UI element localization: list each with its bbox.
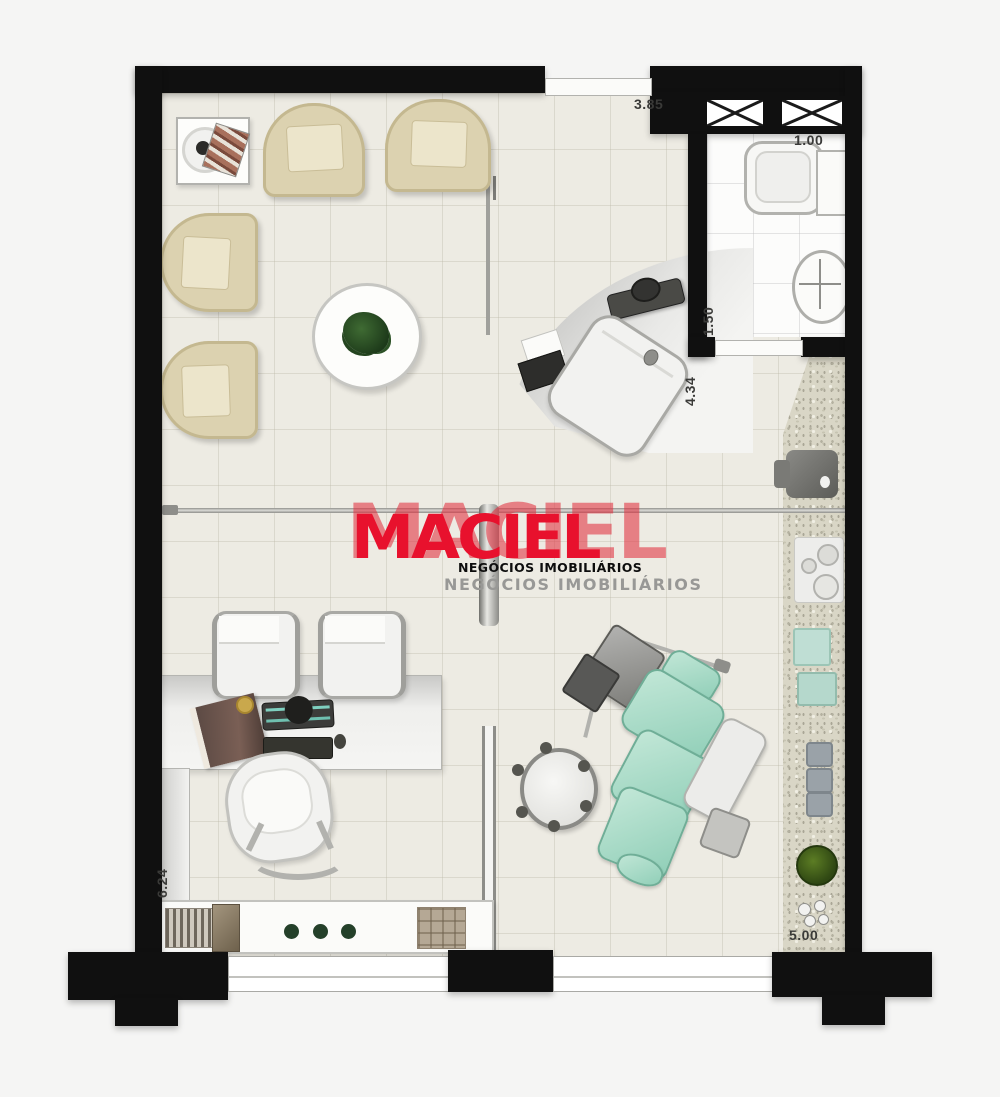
stool-foot — [540, 742, 552, 754]
credenza-shelf — [160, 900, 494, 954]
side-table — [176, 117, 250, 185]
guest-chair-1 — [212, 611, 300, 699]
vent-shaft-2 — [778, 96, 846, 130]
decor-dot — [313, 924, 328, 939]
dim-hall-depth: 4.34 — [682, 352, 698, 406]
glass-partition-end-cap — [162, 505, 178, 515]
wall-bottom-middle — [448, 950, 553, 992]
tray-circle — [813, 574, 839, 600]
sterilizer-handle — [774, 460, 790, 488]
stool-foot — [578, 760, 590, 772]
dim-reception-width: 3.85 — [634, 96, 663, 112]
stool-foot — [548, 820, 560, 832]
counter-teal-tray — [793, 628, 831, 666]
logo-maciel: MACIEL — [351, 507, 598, 568]
tray-box-icon — [417, 907, 466, 949]
column-bottom-right-stub — [822, 995, 885, 1025]
wall-top-left — [135, 66, 545, 93]
guest-chair-back — [325, 616, 385, 644]
bathroom-sink — [744, 141, 824, 215]
guest-chair-back — [219, 616, 279, 644]
waiting-armchair-1 — [263, 103, 365, 197]
gold-coin-icon — [236, 696, 254, 714]
wall-left — [135, 66, 162, 956]
desk-monitor-icon — [261, 699, 334, 731]
counter-plant-icon — [796, 845, 838, 886]
entry-glass-screen-handle — [493, 176, 496, 200]
tray-circle — [817, 544, 839, 566]
window-sill — [554, 976, 773, 978]
waiting-armchair-2 — [385, 99, 491, 192]
sink-basin — [755, 151, 811, 203]
counter-gray-module — [806, 792, 833, 817]
decor-dot — [341, 924, 356, 939]
instrument-tray-module — [794, 537, 844, 603]
waiting-armchair-4 — [160, 341, 258, 439]
office-chair-cushion — [238, 765, 316, 838]
stool-foot — [512, 764, 524, 776]
coffee-table — [312, 283, 422, 390]
toilet-cross-h — [799, 283, 841, 285]
logo-tagline-black: NEGÓCIOS IMOBILIÁRIOS — [458, 562, 642, 575]
waiting-armchair-3 — [160, 213, 258, 312]
floor-plan-image: { "watermark": { "brand_front": "MACIEL"… — [0, 0, 1000, 1097]
counter-teal-tray — [797, 672, 837, 706]
dim-bathroom-depth: 1.50 — [700, 284, 716, 336]
wood-box-icon — [212, 904, 240, 952]
counter-gray-module — [806, 768, 833, 793]
tray-circle — [801, 558, 817, 574]
column-bottom-left-stub — [115, 998, 178, 1026]
pebble — [818, 914, 829, 925]
guest-chair-2 — [318, 611, 406, 699]
logo-tagline-gray: NEGÓCIOS IMOBILIÁRIOS — [444, 577, 703, 593]
wall-top-bathroom — [650, 66, 862, 92]
window-bottom-2 — [553, 956, 774, 992]
sink-counter — [816, 150, 848, 216]
armchair-cushion — [410, 120, 468, 168]
window-bottom-1 — [228, 956, 450, 992]
armchair-cushion — [181, 236, 232, 290]
sterilizer-dot — [820, 476, 830, 488]
stool-foot — [580, 800, 592, 812]
counter-gray-module — [806, 742, 833, 767]
column-bottom-left — [68, 952, 228, 1000]
dim-office-depth: 6.24 — [154, 846, 170, 898]
entry-glass-screen — [486, 168, 490, 335]
window-sill — [229, 976, 449, 978]
wall-right — [845, 66, 862, 956]
vent-shaft-1 — [703, 96, 767, 130]
bathroom-toilet — [792, 250, 852, 324]
pebble — [814, 900, 826, 912]
armchair-cushion — [181, 364, 231, 418]
stool-foot — [516, 806, 528, 818]
wall-bathroom-bottom-right — [801, 337, 845, 357]
column-bottom-right — [772, 952, 932, 997]
sterilizer-unit — [786, 450, 838, 498]
office-chair-base — [248, 834, 348, 880]
decor-dot — [284, 924, 299, 939]
dim-treatment-width: 5.00 — [789, 927, 818, 943]
armchair-cushion — [286, 124, 344, 173]
plant-icon — [343, 312, 389, 354]
dim-bathroom-width: 1.00 — [794, 132, 823, 148]
bathroom-door — [715, 340, 803, 356]
pebble — [804, 915, 816, 927]
book-stack-icon — [165, 908, 213, 948]
entrance-door — [545, 78, 652, 96]
desk-mouse-icon — [334, 734, 346, 749]
